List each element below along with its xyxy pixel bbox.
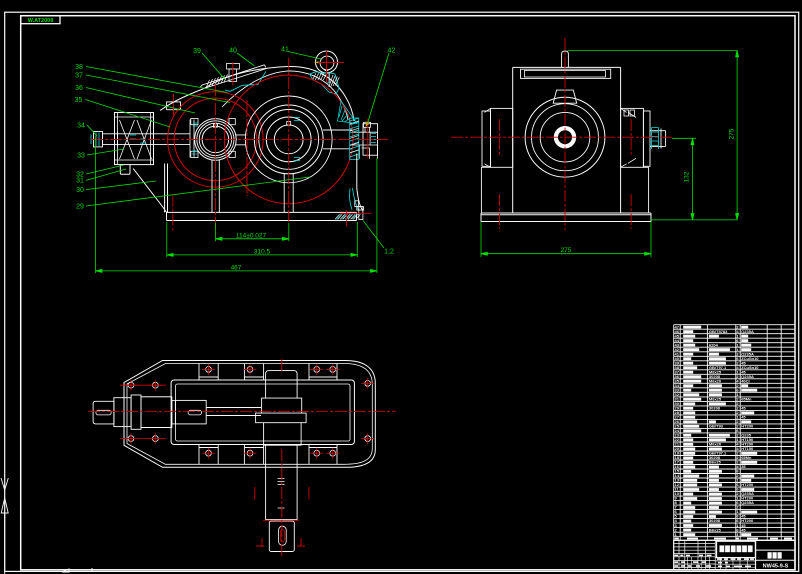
svg-text:W.AT2008: W.AT2008: [28, 18, 54, 24]
svg-text:41: 41: [281, 46, 289, 53]
svg-text:NW45-9-S: NW45-9-S: [763, 563, 789, 569]
svg-text:40Cr: 40Cr: [741, 378, 750, 383]
svg-text:HT150: HT150: [741, 446, 754, 451]
svg-text:65Mn: 65Mn: [741, 397, 752, 402]
svg-text:M6x20: M6x20: [709, 378, 722, 383]
svg-text:30: 30: [76, 187, 84, 194]
svg-text:39: 39: [193, 48, 201, 55]
svg-text:45: 45: [741, 527, 746, 532]
svg-text:45: 45: [741, 406, 746, 411]
svg-text:310.5: 310.5: [254, 248, 271, 255]
svg-text:Q235A: Q235A: [741, 500, 754, 505]
svg-text:M6x20: M6x20: [709, 442, 722, 447]
svg-text:467: 467: [231, 264, 242, 271]
svg-text:1,2: 1,2: [384, 249, 394, 256]
svg-text:HT200: HT200: [741, 482, 754, 487]
svg-text:31: 31: [76, 178, 84, 185]
svg-text:275: 275: [728, 128, 735, 139]
svg-text:40: 40: [229, 47, 237, 54]
svg-text:132: 132: [684, 171, 691, 182]
svg-text:GB/T5783: GB/T5783: [709, 329, 728, 334]
svg-text:B6x25: B6x25: [709, 460, 722, 465]
svg-text:HT200: HT200: [741, 424, 754, 429]
svg-text:GB/T93: GB/T93: [709, 424, 724, 429]
svg-text:29: 29: [76, 203, 84, 210]
svg-text:6204: 6204: [709, 342, 719, 347]
svg-text:B6x25: B6x25: [709, 527, 722, 532]
svg-text:Q235A: Q235A: [741, 329, 754, 334]
svg-text:45: 45: [741, 415, 746, 420]
svg-text:30208: 30208: [709, 406, 721, 411]
svg-text:36: 36: [75, 85, 83, 92]
svg-text:35: 35: [75, 97, 83, 104]
svg-text:35: 35: [741, 464, 746, 469]
svg-text:38: 38: [75, 64, 83, 71]
svg-text:33: 33: [77, 152, 85, 159]
svg-text:65Mn: 65Mn: [741, 455, 752, 460]
svg-text:275: 275: [561, 247, 572, 254]
svg-text:114±0.027: 114±0.027: [236, 232, 267, 239]
svg-text:M8x25: M8x25: [709, 397, 722, 402]
svg-text:30208: 30208: [709, 518, 721, 523]
svg-text:34: 34: [77, 122, 85, 129]
svg-text:37: 37: [75, 72, 83, 79]
